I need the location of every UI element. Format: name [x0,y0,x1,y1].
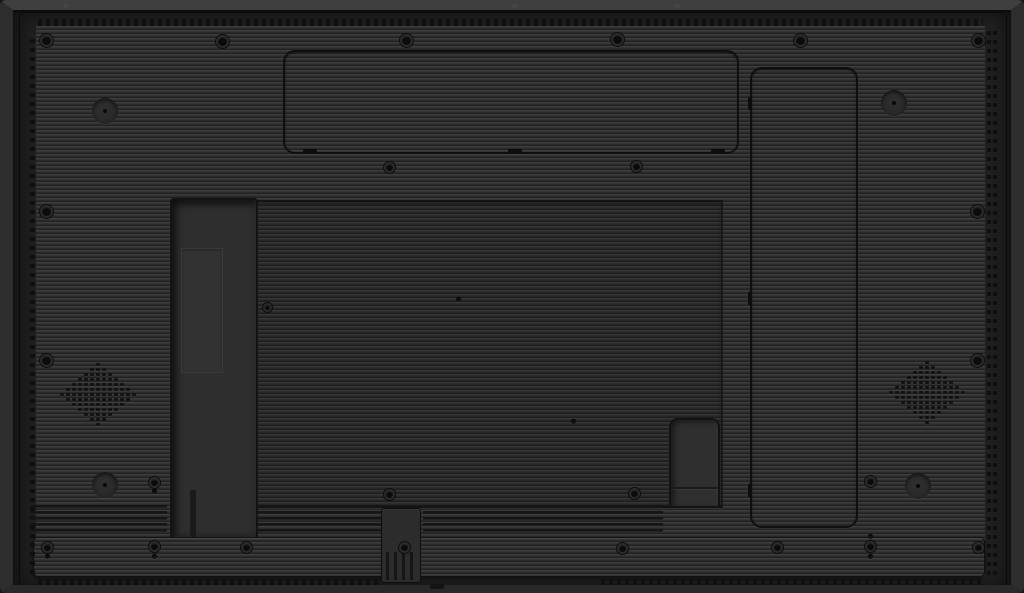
recess-center-hole [103,483,107,487]
speaker-grille-hole [96,368,100,371]
speaker-grille-hole [901,391,905,394]
speaker-grille-hole [937,406,941,409]
speaker-grille-hole [943,406,947,409]
speaker-grille-hole [925,411,929,414]
speaker-grille-hole [931,386,935,389]
pin-hole [45,554,50,559]
speaker-grille-hole [955,396,959,399]
speaker-grille-row [60,393,136,396]
screw [865,541,876,552]
screw [241,542,252,553]
speaker-grille-hole [907,396,911,399]
speaker-grille-hole [102,383,106,386]
speaker-grille-hole [102,413,106,416]
speaker-grille-hole [102,388,106,391]
pin-hole [868,534,873,539]
speaker-grille-hole [919,376,923,379]
speaker-grille-row [72,403,124,406]
speaker-grille-hole [919,381,923,384]
speaker-grille-hole [931,376,935,379]
speaker-grille-row [907,376,947,379]
speaker-grille-hole [901,381,905,384]
speaker-grille-hole [60,393,64,396]
panel-tab [748,484,752,497]
speaker-grille-hole [114,378,118,381]
small-access-door [669,418,720,508]
speaker-grille-hole [919,396,923,399]
speaker-grille-hole [931,371,935,374]
speaker-grille-hole [949,401,953,404]
speaker-grille-hole [913,396,917,399]
speaker-grille-hole [84,393,88,396]
speaker-grille-hole [961,391,965,394]
speaker-grille-hole [96,398,100,401]
speaker-grille-hole [84,373,88,376]
speaker-grille-hole [108,403,112,406]
speaker-grille-hole [913,371,917,374]
speaker-grille-hole [114,393,118,396]
speaker-grille-hole [949,386,953,389]
small-access-door-ridge [671,487,718,489]
louver-vent-band [423,505,663,535]
speaker-grille-hole [90,388,94,391]
screw [971,354,984,367]
speaker-grille-hole [90,398,94,401]
speaker-grille-row [907,406,947,409]
speaker-grille-hole [931,401,935,404]
speaker-grille-hole [907,401,911,404]
speaker-grille-hole [102,398,106,401]
speaker-grille-hole [108,383,112,386]
speaker-grille-hole [925,361,929,364]
top-edge-mark [675,4,680,8]
speaker-grille-hole [102,408,106,411]
side-access-panel [750,67,858,528]
top-access-panel [283,50,739,154]
speaker-grille-hole [96,418,100,421]
speaker-grille-hole [96,403,100,406]
screw [617,543,628,554]
screw [40,34,53,47]
speaker-grille-hole [114,398,118,401]
speaker-grille-hole [78,408,82,411]
speaker-grille-hole [84,403,88,406]
speaker-grille-hole [108,393,112,396]
speaker-grille-hole [907,386,911,389]
speaker-grille-row [78,408,118,411]
speaker-grille-hole [108,413,112,416]
speaker-grille-hole [72,398,76,401]
screw [40,205,53,218]
speaker-grille-hole [919,391,923,394]
vent-strip-right [993,30,997,575]
speaker-grille-hole [937,401,941,404]
recess-center-hole [103,109,107,113]
speaker-grille-row [925,361,929,364]
pin-hole [868,554,873,559]
speaker-grille-hole [943,376,947,379]
circular-recess [881,90,907,116]
speaker-grille-hole [84,378,88,381]
speaker-grille-hole [90,378,94,381]
speaker-grille-hole [925,381,929,384]
speaker-grille-row [84,413,112,416]
speaker-grille-hole [108,398,112,401]
speaker-grille-hole [943,396,947,399]
screw [794,34,807,47]
recess-center-hole [916,484,920,488]
speaker-grille-hole [78,398,82,401]
speaker-grille-hole [925,366,929,369]
speaker-grille-hole [919,366,923,369]
screw [384,162,395,173]
speaker-grille-hole [925,386,929,389]
screw [149,477,160,488]
speaker-grille-hole [114,403,118,406]
speaker-grille-hole [90,383,94,386]
speaker-grille-hole [102,373,106,376]
speaker-grille-hole [907,391,911,394]
speaker-grille-hole [943,386,947,389]
circular-recess [92,98,118,124]
screw [631,161,642,172]
speaker-grille-hole [126,388,130,391]
pin-hole [152,554,157,559]
vent-strip-bottom [601,579,985,586]
speaker-grille-hole [66,398,70,401]
speaker-grille-hole [90,413,94,416]
top-edge-mark [63,4,68,8]
speaker-grille-row [913,411,941,414]
speaker-grille-hole [78,388,82,391]
left-speaker-grille [60,363,136,426]
pin-hole [571,419,576,424]
speaker-grille-hole [132,393,136,396]
speaker-grille-row [895,396,959,399]
speaker-grille-hole [108,373,112,376]
speaker-grille-hole [120,393,124,396]
speaker-grille-hole [919,371,923,374]
speaker-grille-hole [907,406,911,409]
screw [972,34,985,47]
speaker-grille-hole [90,408,94,411]
speaker-grille-hole [114,408,118,411]
speaker-grille-hole [66,388,70,391]
speaker-grille-hole [931,416,935,419]
bottom-rail [33,537,985,577]
speaker-grille-hole [901,386,905,389]
speaker-grille-hole [96,363,100,366]
speaker-grille-hole [78,403,82,406]
speaker-grille-hole [949,381,953,384]
panel-tab [508,149,522,154]
speaker-grille-hole [925,396,929,399]
screw [40,354,53,367]
speaker-grille-hole [66,393,70,396]
speaker-grille-row [889,391,965,394]
speaker-grille-hole [931,396,935,399]
speaker-grille-hole [72,383,76,386]
speaker-grille-row [78,378,118,381]
speaker-grille-hole [96,383,100,386]
speaker-grille-hole [114,388,118,391]
speaker-grille-hole [84,408,88,411]
speaker-grille-hole [108,388,112,391]
speaker-grille-hole [114,383,118,386]
speaker-grille-hole [949,396,953,399]
speaker-grille-hole [949,391,953,394]
speaker-grille-row [901,381,953,384]
circular-recess [92,472,118,498]
speaker-grille-hole [84,383,88,386]
speaker-grille-hole [913,406,917,409]
speaker-grille-hole [913,391,917,394]
speaker-grille-hole [102,393,106,396]
speaker-grille-hole [895,391,899,394]
speaker-grille-row [72,383,124,386]
speaker-grille-hole [913,411,917,414]
recess-center-hole [892,101,896,105]
speaker-grille-hole [919,386,923,389]
speaker-grille-hole [937,396,941,399]
speaker-grille-hole [78,393,82,396]
speaker-grille-hole [955,391,959,394]
speaker-grille-hole [120,383,124,386]
screw [629,488,640,499]
speaker-grille-hole [96,393,100,396]
screw [971,205,984,218]
speaker-grille-hole [895,396,899,399]
speaker-grille-hole [943,401,947,404]
vent-strip-top [38,19,983,26]
speaker-grille-hole [931,381,935,384]
panel-tab [748,97,752,110]
speaker-grille-hole [919,401,923,404]
screw [400,34,413,47]
speaker-grille-row [96,363,100,366]
circular-recess [905,473,931,499]
speaker-grille-hole [931,411,935,414]
speaker-grille-row [90,418,106,421]
screw [42,542,53,553]
speaker-grille-hole [96,423,100,426]
speaker-grille-hole [90,373,94,376]
speaker-grille-hole [901,396,905,399]
speaker-grille-hole [84,413,88,416]
speaker-grille-hole [96,378,100,381]
screw [384,489,395,500]
vent-strip-right [987,30,991,575]
speaker-grille-hole [96,388,100,391]
pin-hole [456,297,461,302]
speaker-grille-row [901,401,953,404]
speaker-grille-hole [102,418,106,421]
speaker-grille-hole [937,381,941,384]
speaker-grille-hole [937,376,941,379]
vent-strip-bottom [38,579,380,586]
panel-tab [748,292,752,305]
monitor-back-panel [0,0,1024,593]
speaker-grille-hole [90,418,94,421]
speaker-grille-row [90,368,106,371]
speaker-grille-hole [925,401,929,404]
speaker-grille-hole [919,411,923,414]
speaker-grille-hole [889,391,893,394]
speaker-grille-hole [913,386,917,389]
speaker-grille-hole [937,391,941,394]
speaker-grille-hole [937,411,941,414]
speaker-grille-row [925,421,929,424]
speaker-grille-hole [90,368,94,371]
cable-comb-vent [386,552,416,580]
panel-tab [711,149,725,154]
bottom-edge-notch [430,584,444,589]
speaker-grille-hole [943,381,947,384]
screw [611,33,624,46]
speaker-grille-row [919,366,935,369]
stand-channel-split [190,490,196,537]
speaker-grille-hole [913,381,917,384]
right-speaker-grille [889,361,965,424]
speaker-grille-hole [126,398,130,401]
speaker-grille-hole [937,386,941,389]
speaker-grille-hole [90,403,94,406]
speaker-grille-hole [78,383,82,386]
speaker-grille-hole [102,403,106,406]
speaker-grille-row [919,416,935,419]
speaker-grille-hole [925,416,929,419]
speaker-grille-hole [120,398,124,401]
speaker-grille-hole [943,391,947,394]
speaker-grille-hole [96,373,100,376]
speaker-grille-hole [78,378,82,381]
stand-channel-inner-plate [181,248,223,373]
speaker-grille-hole [84,388,88,391]
speaker-grille-hole [895,386,899,389]
speaker-grille-hole [919,416,923,419]
speaker-grille-hole [913,376,917,379]
speaker-grille-row [84,373,112,376]
screw [149,541,160,552]
screw [263,303,272,312]
speaker-grille-hole [925,391,929,394]
speaker-grille-row [96,423,100,426]
speaker-grille-hole [907,376,911,379]
speaker-grille-row [913,371,941,374]
speaker-grille-hole [90,393,94,396]
speaker-grille-hole [925,376,929,379]
speaker-grille-hole [925,421,929,424]
speaker-grille-hole [108,378,112,381]
speaker-grille-hole [102,378,106,381]
screw [865,476,876,487]
speaker-grille-hole [96,413,100,416]
speaker-grille-hole [96,408,100,411]
speaker-grille-hole [120,388,124,391]
speaker-grille-hole [919,406,923,409]
screw [399,542,410,553]
screw [216,35,229,48]
speaker-grille-hole [925,406,929,409]
speaker-grille-hole [931,391,935,394]
speaker-grille-row [895,386,959,389]
speaker-grille-hole [108,408,112,411]
panel-tab [303,149,317,154]
speaker-grille-hole [913,401,917,404]
speaker-grille-hole [126,393,130,396]
speaker-grille-hole [102,368,106,371]
speaker-grille-hole [925,371,929,374]
speaker-grille-hole [120,403,124,406]
speaker-grille-row [66,388,130,391]
speaker-grille-hole [72,393,76,396]
speaker-grille-hole [901,401,905,404]
speaker-grille-row [66,398,130,401]
speaker-grille-hole [84,398,88,401]
speaker-grille-hole [955,386,959,389]
vent-strip-left [30,34,35,574]
speaker-grille-hole [931,366,935,369]
speaker-grille-hole [72,403,76,406]
pin-hole [152,489,157,494]
screw [973,542,984,553]
top-edge-mark [512,4,517,8]
speaker-grille-hole [72,388,76,391]
speaker-grille-hole [907,381,911,384]
speaker-grille-hole [931,406,935,409]
louver-vent-band [30,505,167,535]
speaker-grille-hole [937,371,941,374]
screw [772,542,783,553]
louver-vent-band [258,505,383,535]
